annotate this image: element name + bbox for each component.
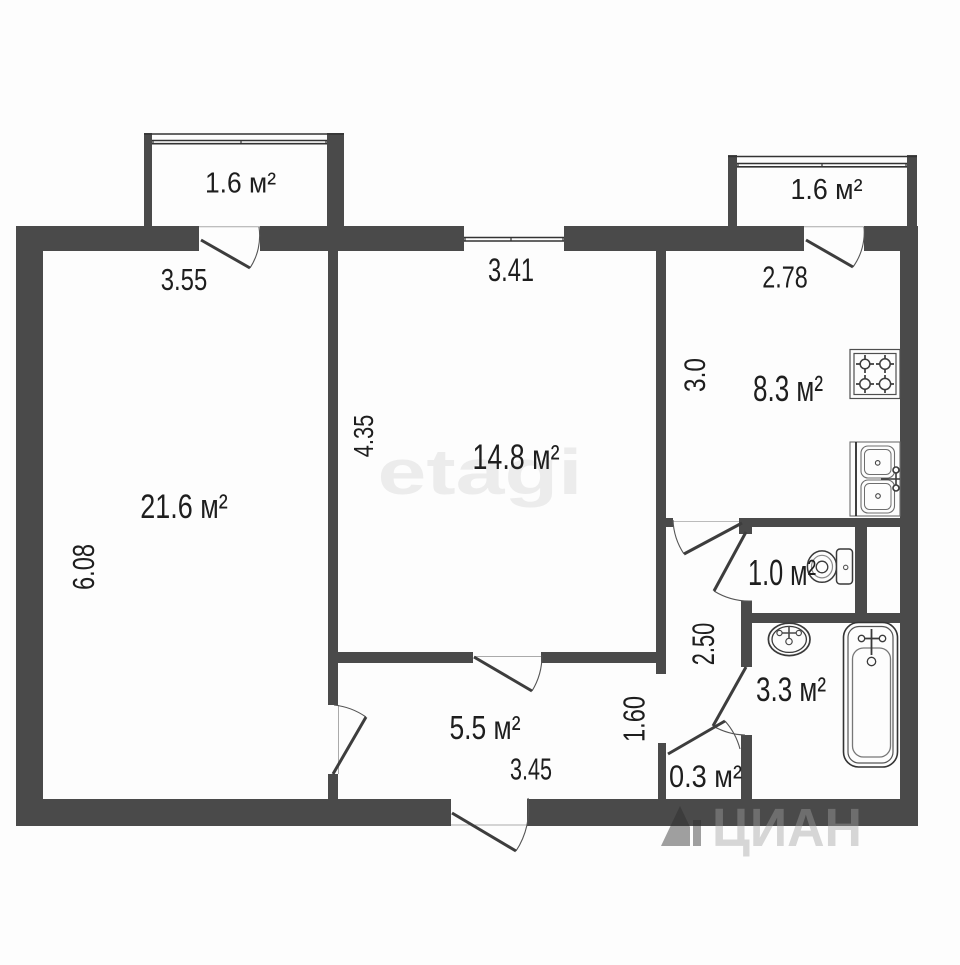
svg-text:3.55: 3.55 [161, 262, 208, 297]
svg-text:2.50: 2.50 [685, 623, 721, 665]
svg-text:3.41: 3.41 [488, 252, 534, 288]
svg-text:14.8 м²: 14.8 м² [473, 438, 560, 477]
svg-text:1.6 м²: 1.6 м² [791, 174, 863, 206]
svg-text:5.5 м²: 5.5 м² [450, 709, 521, 746]
svg-text:ЦИАН: ЦИАН [712, 798, 862, 858]
svg-text:21.6 м²: 21.6 м² [140, 488, 228, 526]
svg-text:2.78: 2.78 [762, 260, 808, 295]
svg-text:6.08: 6.08 [66, 544, 101, 590]
svg-text:0.3 м²: 0.3 м² [669, 758, 742, 794]
svg-text:1.6 м²: 1.6 м² [205, 168, 276, 200]
svg-text:8.3 м²: 8.3 м² [753, 368, 823, 409]
svg-text:4.35: 4.35 [348, 415, 379, 458]
svg-text:3.0: 3.0 [679, 358, 712, 392]
svg-text:3.3 м²: 3.3 м² [756, 671, 826, 709]
svg-text:1.60: 1.60 [617, 696, 652, 742]
svg-text:3.45: 3.45 [510, 752, 552, 787]
svg-text:1.0 м²: 1.0 м² [748, 552, 816, 593]
